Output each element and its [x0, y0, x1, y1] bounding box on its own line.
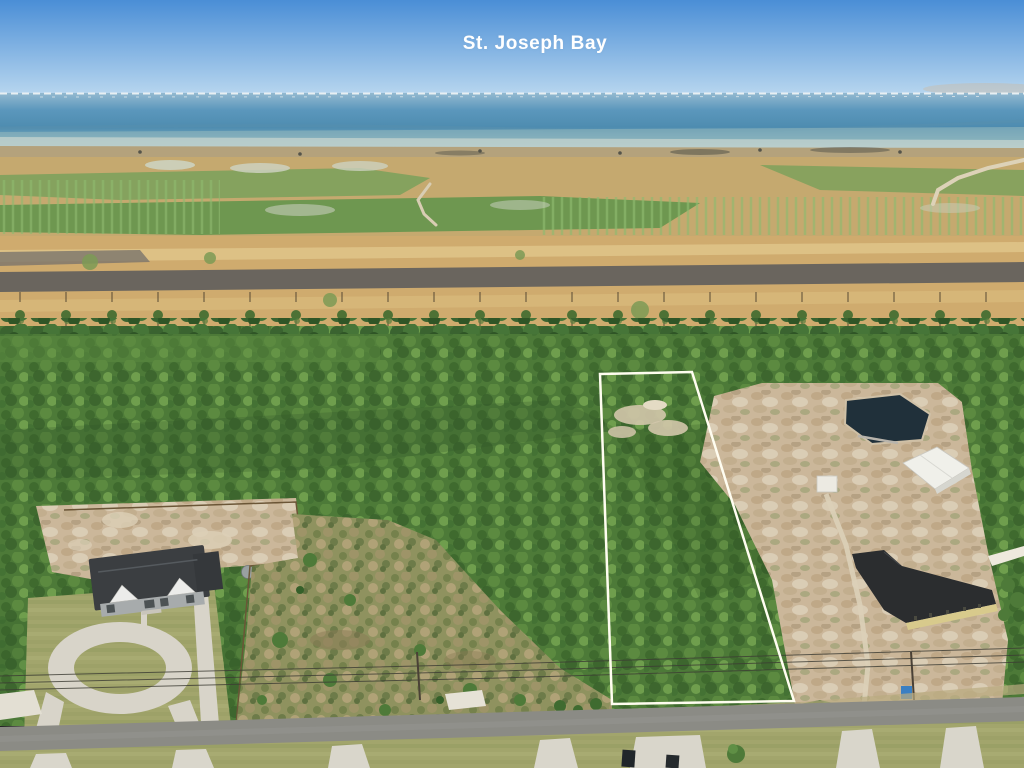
forest-edge-canopy	[0, 318, 1024, 334]
parked-car	[621, 750, 635, 768]
bay-label: St. Joseph Bay	[463, 33, 608, 55]
shed	[817, 476, 837, 492]
aerial-scene	[0, 0, 1024, 768]
parked-car-2	[666, 755, 680, 768]
aerial-photo: St. Joseph Bay	[0, 0, 1024, 768]
